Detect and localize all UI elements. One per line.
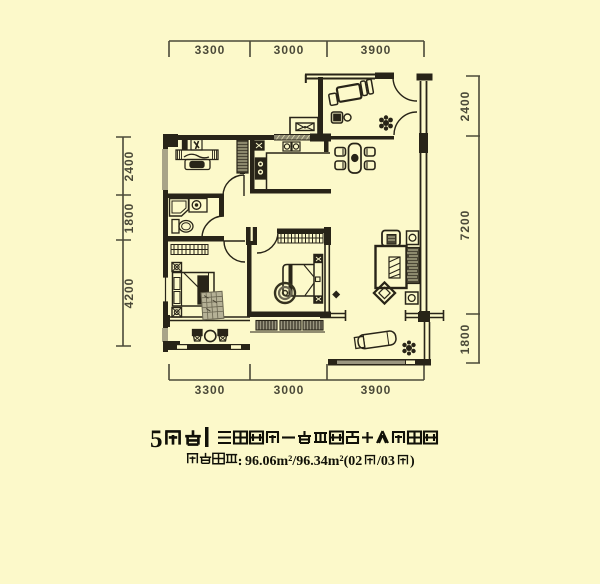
svg-text:3300: 3300 [195, 43, 226, 57]
svg-text:1800: 1800 [458, 324, 472, 355]
svg-text:5: 5 [150, 426, 163, 453]
svg-text:/03: /03 [376, 454, 395, 469]
svg-text:3000: 3000 [274, 43, 305, 57]
svg-text:2400: 2400 [458, 91, 472, 122]
svg-text:1800: 1800 [122, 203, 136, 234]
svg-text:4200: 4200 [122, 278, 136, 309]
svg-text:): ) [410, 454, 415, 469]
svg-text:3300: 3300 [195, 383, 226, 397]
svg-text:3900: 3900 [361, 43, 392, 57]
svg-text:96.06m²/96.34m²(02: 96.06m²/96.34m²(02 [245, 454, 362, 469]
svg-text:2400: 2400 [122, 151, 136, 182]
svg-text:3000: 3000 [274, 383, 305, 397]
svg-text:3900: 3900 [361, 383, 392, 397]
svg-text:7200: 7200 [458, 210, 472, 241]
